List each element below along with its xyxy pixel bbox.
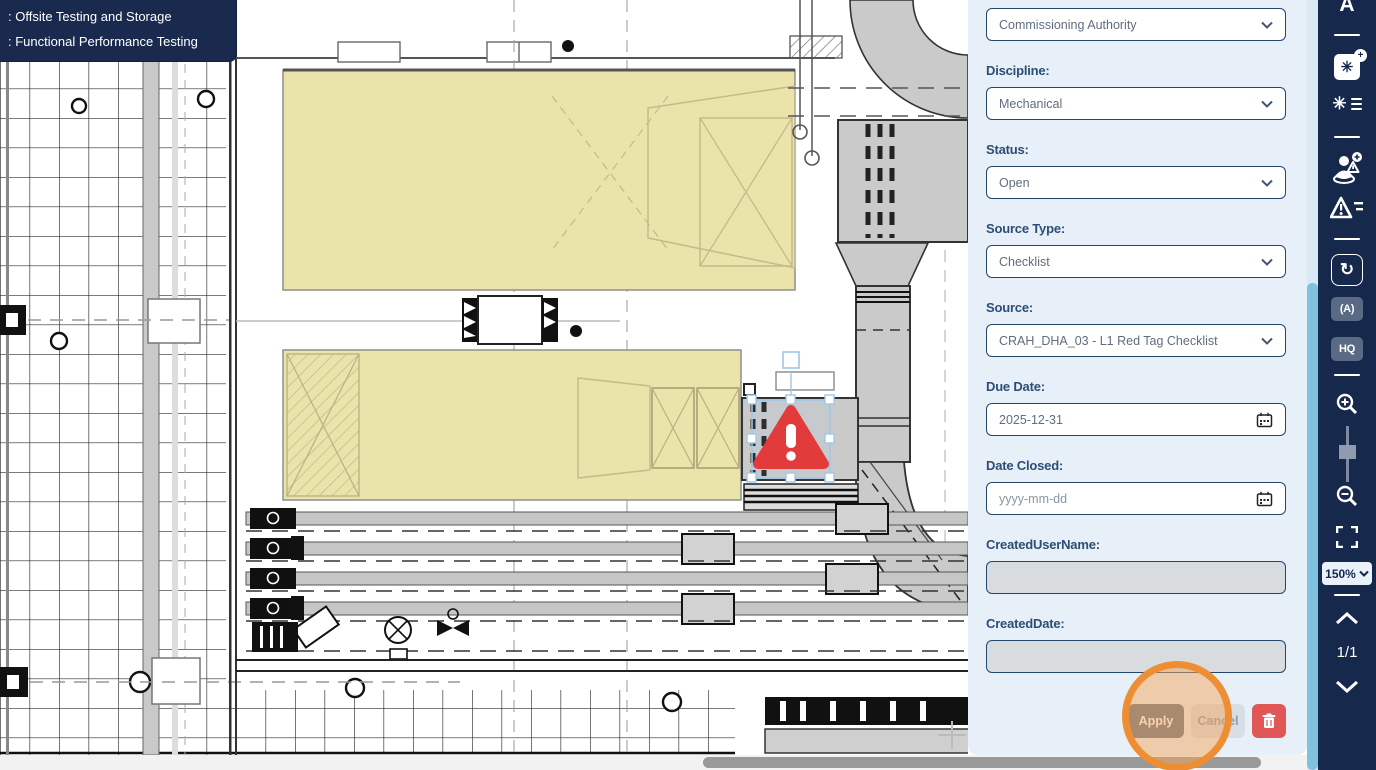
- floorplan-svg: [0, 0, 968, 755]
- zoom-slider-track[interactable]: [1346, 426, 1349, 482]
- source-type-value: Checklist: [999, 255, 1261, 269]
- plus-badge-icon: +: [1354, 49, 1367, 62]
- status-select[interactable]: Open: [986, 166, 1286, 199]
- top-right-ducts: [788, 0, 968, 242]
- date-closed-input[interactable]: [999, 492, 1248, 506]
- zoom-in-icon: [1335, 392, 1359, 416]
- chevron-down-icon: [1261, 179, 1273, 187]
- responsible-party-value: Commissioning Authority: [999, 18, 1261, 32]
- chevron-down-icon: [1359, 570, 1369, 577]
- text-tool-button[interactable]: A: [1318, 0, 1376, 17]
- field-created-user: CreatedUserName:: [986, 537, 1286, 594]
- toolbar-divider: [1318, 374, 1376, 376]
- chevron-down-icon: [1261, 337, 1273, 345]
- auto-fit-icon: (A): [1331, 297, 1363, 321]
- fan-icon: ✳ +: [1334, 54, 1360, 80]
- zoom-level-value: 150%: [1325, 567, 1356, 581]
- page-indicator: 1/1: [1318, 644, 1376, 661]
- zoom-in-button[interactable]: [1318, 392, 1376, 416]
- next-page-button[interactable]: [1318, 680, 1376, 693]
- issue-properties-panel: Commissioning Authority Discipline: Mech…: [968, 0, 1307, 755]
- created-date-label: CreatedDate:: [986, 616, 1286, 631]
- equipment-zone-highlight-2: [283, 350, 741, 500]
- fullscreen-button[interactable]: [1318, 526, 1376, 548]
- viewer-toolbar: A ✳ + ✳: [1318, 0, 1376, 770]
- created-user-label: CreatedUserName:: [986, 537, 1286, 552]
- equipment-zone-highlight-1: [283, 70, 795, 290]
- person-warning-icon: [1331, 152, 1363, 186]
- toolbar-divider: [1318, 594, 1376, 596]
- calendar-icon[interactable]: [1256, 412, 1273, 428]
- field-discipline: Discipline: Mechanical: [986, 63, 1286, 120]
- source-value: CRAH_DHA_03 - L1 Red Tag Checklist: [999, 334, 1261, 348]
- fullscreen-icon: [1336, 526, 1358, 548]
- chevron-down-icon: [1335, 680, 1359, 693]
- chevron-down-icon: [1261, 258, 1273, 266]
- chevron-up-icon: [1335, 612, 1359, 625]
- discipline-select[interactable]: Mechanical: [986, 87, 1286, 120]
- created-user-inputbox: [986, 561, 1286, 594]
- zoom-level-select[interactable]: 150%: [1318, 562, 1376, 585]
- toolbar-divider: [1318, 136, 1376, 138]
- list-lines-icon: [1351, 98, 1362, 110]
- text-tool-icon: A: [1339, 0, 1354, 17]
- field-source-type: Source Type: Checklist: [986, 221, 1286, 278]
- field-due-date: Due Date:: [986, 379, 1286, 436]
- tooltip-line-2: : Functional Performance Testing: [8, 29, 228, 54]
- auto-fit-button[interactable]: (A): [1318, 297, 1376, 321]
- delete-button[interactable]: [1252, 704, 1286, 738]
- date-closed-inputbox: [986, 482, 1286, 515]
- due-date-label: Due Date:: [986, 379, 1286, 394]
- piping-runs: [246, 504, 968, 659]
- tooltip-line-1: : Offsite Testing and Storage: [8, 4, 228, 29]
- fan-icon: ✳: [1332, 94, 1346, 114]
- source-type-select[interactable]: Checklist: [986, 245, 1286, 278]
- discipline-label: Discipline:: [986, 63, 1286, 78]
- zoom-out-icon: [1335, 484, 1359, 508]
- previous-page-button[interactable]: [1318, 612, 1376, 625]
- due-date-inputbox: [986, 403, 1286, 436]
- field-created-date: CreatedDate:: [986, 616, 1286, 673]
- add-issue-button[interactable]: [1318, 152, 1376, 186]
- trash-icon: [1262, 713, 1276, 729]
- damper-symbol: [236, 296, 620, 344]
- status-label: Status:: [986, 142, 1286, 157]
- zoom-slider[interactable]: [1318, 426, 1376, 482]
- responsible-party-select[interactable]: Commissioning Authority: [986, 8, 1286, 41]
- created-user-input: [999, 571, 1273, 585]
- drawing-canvas[interactable]: : Offsite Testing and Storage : Function…: [0, 0, 968, 755]
- calendar-icon[interactable]: [1256, 491, 1273, 507]
- toolbar-divider: [1318, 238, 1376, 240]
- field-date-closed: Date Closed:: [986, 458, 1286, 515]
- chevron-down-icon: [1261, 21, 1273, 29]
- horizontal-scrollbar-track[interactable]: [0, 755, 1318, 770]
- app-root: : Offsite Testing and Storage : Function…: [0, 0, 1376, 770]
- apply-button[interactable]: Apply: [1128, 704, 1184, 738]
- zoom-out-button[interactable]: [1318, 484, 1376, 508]
- high-quality-button[interactable]: HQ: [1318, 337, 1376, 361]
- toolbar-divider: [1318, 34, 1376, 36]
- created-date-input: [999, 650, 1273, 664]
- status-value: Open: [999, 176, 1261, 190]
- date-closed-label: Date Closed:: [986, 458, 1286, 473]
- created-date-inputbox: [986, 640, 1286, 673]
- panel-button-row: Apply Cancel: [986, 704, 1286, 738]
- annotation-tooltip: : Offsite Testing and Storage : Function…: [0, 0, 237, 62]
- discipline-value: Mechanical: [999, 97, 1261, 111]
- add-equipment-button[interactable]: ✳ +: [1318, 54, 1376, 80]
- page-indicator-value: 1/1: [1337, 644, 1358, 661]
- hq-icon: HQ: [1331, 337, 1363, 361]
- source-type-label: Source Type:: [986, 221, 1286, 236]
- panel-scrollbar-thumb[interactable]: [1307, 283, 1318, 770]
- field-responsible-party: Commissioning Authority: [986, 8, 1286, 41]
- cancel-button[interactable]: Cancel: [1191, 704, 1245, 738]
- source-label: Source:: [986, 300, 1286, 315]
- warning-list-icon: [1330, 196, 1364, 222]
- field-status: Status: Open: [986, 142, 1286, 199]
- chevron-down-icon: [1261, 100, 1273, 108]
- zoom-slider-handle[interactable]: [1339, 445, 1356, 459]
- field-source: Source: CRAH_DHA_03 - L1 Red Tag Checkli…: [986, 300, 1286, 357]
- source-select[interactable]: CRAH_DHA_03 - L1 Red Tag Checklist: [986, 324, 1286, 357]
- equipment-list-button[interactable]: ✳: [1318, 94, 1376, 114]
- refresh-button[interactable]: ↻: [1318, 254, 1376, 286]
- horizontal-scrollbar-thumb[interactable]: [703, 757, 1261, 768]
- issue-list-button[interactable]: [1318, 196, 1376, 222]
- panel-scrollbar-track[interactable]: [1307, 0, 1318, 770]
- refresh-icon: ↻: [1331, 254, 1363, 286]
- due-date-input[interactable]: [999, 413, 1248, 427]
